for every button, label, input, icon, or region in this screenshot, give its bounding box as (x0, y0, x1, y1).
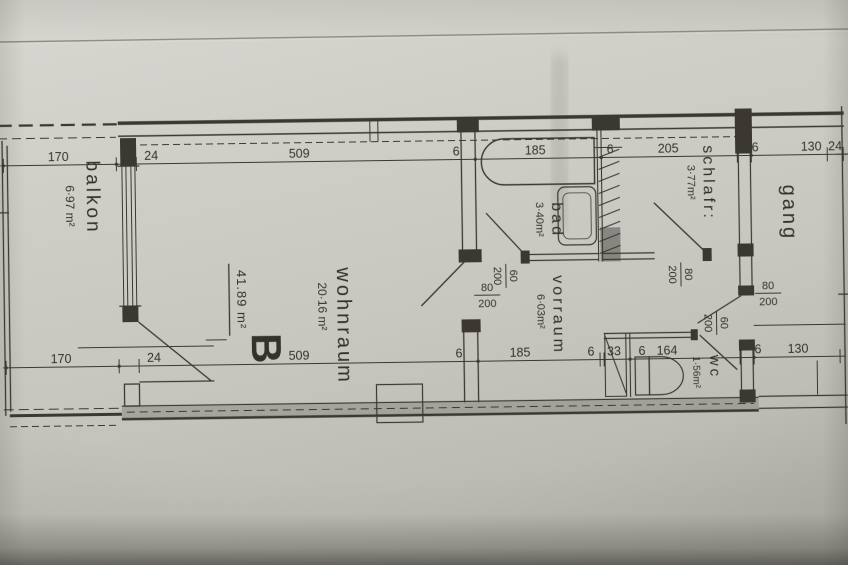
wall-post-balcony-mid (122, 306, 138, 322)
dim-label: 185 (525, 143, 546, 157)
dim-label: 130 (801, 139, 822, 153)
balcony-bottom-dashed-2 (10, 425, 120, 427)
wall-wohnraum-east-lower (464, 332, 479, 402)
door-size-wc: 60 200 (701, 311, 729, 335)
wall-post-corner-right (735, 108, 753, 153)
wall-bottom-gang (759, 395, 848, 408)
room-area-balkon: 6·97 m² (63, 185, 78, 227)
dim-label: 170 (48, 150, 69, 164)
room-area-bad: 3·40m² (533, 202, 545, 237)
dim-label: 185 (509, 346, 530, 360)
door-size-entrance: 80 200 (755, 280, 781, 308)
dim-label: 130 (787, 342, 808, 356)
room-label-wohnraum: wohnraum (332, 266, 356, 385)
room-label-balkon: balkon (81, 160, 103, 234)
door-width: 80 (682, 268, 694, 280)
balcony-top-dashed (0, 124, 118, 126)
dim-label: 6 (607, 142, 614, 156)
door-size-bedroom: 80 200 (666, 262, 694, 286)
paper-fold-highlight (0, 31, 848, 44)
dim-label: 509 (289, 147, 310, 161)
balcony-bottom-edge (10, 414, 122, 416)
dim-label: 24 (147, 351, 161, 365)
room-label-vorraum: vorraum (549, 275, 567, 355)
dim-label: 6 (455, 346, 462, 360)
wall-post-top-2 (592, 116, 620, 130)
shaft-dark-blob (600, 227, 620, 261)
room-area-wohnraum: 20·16 m² (315, 282, 330, 330)
room-label-gang: gang (778, 184, 801, 241)
dim-label: 6 (453, 144, 460, 158)
dim-label: 205 (658, 141, 679, 155)
wall-post-balcony-bottom (124, 384, 139, 406)
door-width: 80 (481, 282, 493, 294)
door-post-entrance-top (738, 285, 754, 295)
floor-plan-photo: 170 24 509 6 185 6 205 6 130 24 170 24 5… (0, 0, 848, 565)
room-label-wc: wc (706, 354, 723, 380)
door-width: 60 (507, 270, 519, 282)
dim-label: 509 (288, 349, 309, 363)
dim-label: 6 (587, 345, 594, 359)
total-area-label: 41.89 m² (229, 263, 250, 335)
door-post-wc (691, 329, 698, 340)
room-area-wc: 1·56m² (690, 356, 701, 388)
washbasin-inner (563, 193, 592, 239)
gang-threshold-line (754, 324, 846, 325)
wall-wohnraum-east-upper (461, 132, 477, 251)
dim-label: 24 (828, 139, 842, 153)
dim-label: 6 (752, 140, 759, 154)
toilet-bowl (649, 356, 684, 394)
balcony-window-ticks (117, 166, 141, 306)
dim-label: 164 (656, 343, 677, 357)
dim-label: 6 (754, 342, 761, 356)
wall-post-right-mid (737, 243, 753, 256)
room-label-schlafr: schlafr: (699, 145, 717, 221)
door-height: 200 (478, 298, 497, 310)
total-area-underline (229, 264, 230, 336)
dim-label: 33 (607, 344, 621, 358)
apartment-type-label: B (243, 333, 290, 364)
balcony-top-dashed-2 (0, 137, 116, 139)
section-line (78, 346, 214, 348)
door-post-living-bottom (462, 319, 481, 332)
door-swing-bad (486, 213, 527, 258)
room-label-bad: bad (548, 202, 565, 238)
room-area-schlafr: 3·77m² (684, 165, 696, 200)
wall-right-upper (738, 153, 752, 293)
door-width: 60 (718, 317, 730, 329)
door-size-living: 80 200 (474, 282, 500, 310)
door-post-living-top (459, 249, 482, 262)
wall-post-balcony-top (120, 138, 136, 166)
door-height: 200 (666, 265, 678, 284)
grid-mark-top-wall (370, 120, 378, 142)
total-area-text: 41.89 m² (234, 270, 250, 330)
wall-bad-bottom (527, 254, 599, 261)
dim-label: 170 (51, 352, 72, 366)
wall-post-right-bottom (740, 389, 756, 402)
paper-fold-line (0, 29, 848, 42)
door-swing-living (421, 259, 468, 306)
toilet-cistern (635, 357, 650, 395)
door-swing-bedroom (654, 202, 706, 253)
plan-content: 170 24 509 6 185 6 205 6 130 24 170 24 5… (0, 106, 848, 436)
dim-label: 6 (638, 344, 645, 358)
balcony-bottom-dashed (4, 408, 122, 410)
balcony-window-glazing (122, 166, 137, 306)
door-height: 200 (701, 314, 713, 333)
door-size-bad: 60 200 (491, 264, 519, 288)
floor-plan-drawing: 170 24 509 6 185 6 205 6 130 24 170 24 5… (0, 0, 848, 565)
shaft-33 (605, 333, 627, 396)
room-area-vorraum: 6·03m² (534, 294, 546, 329)
dim-label: 24 (144, 149, 158, 163)
wall-post-top-1 (457, 118, 479, 132)
door-post-bad (521, 251, 530, 264)
door-height: 200 (759, 296, 778, 308)
door-width: 80 (762, 280, 774, 292)
